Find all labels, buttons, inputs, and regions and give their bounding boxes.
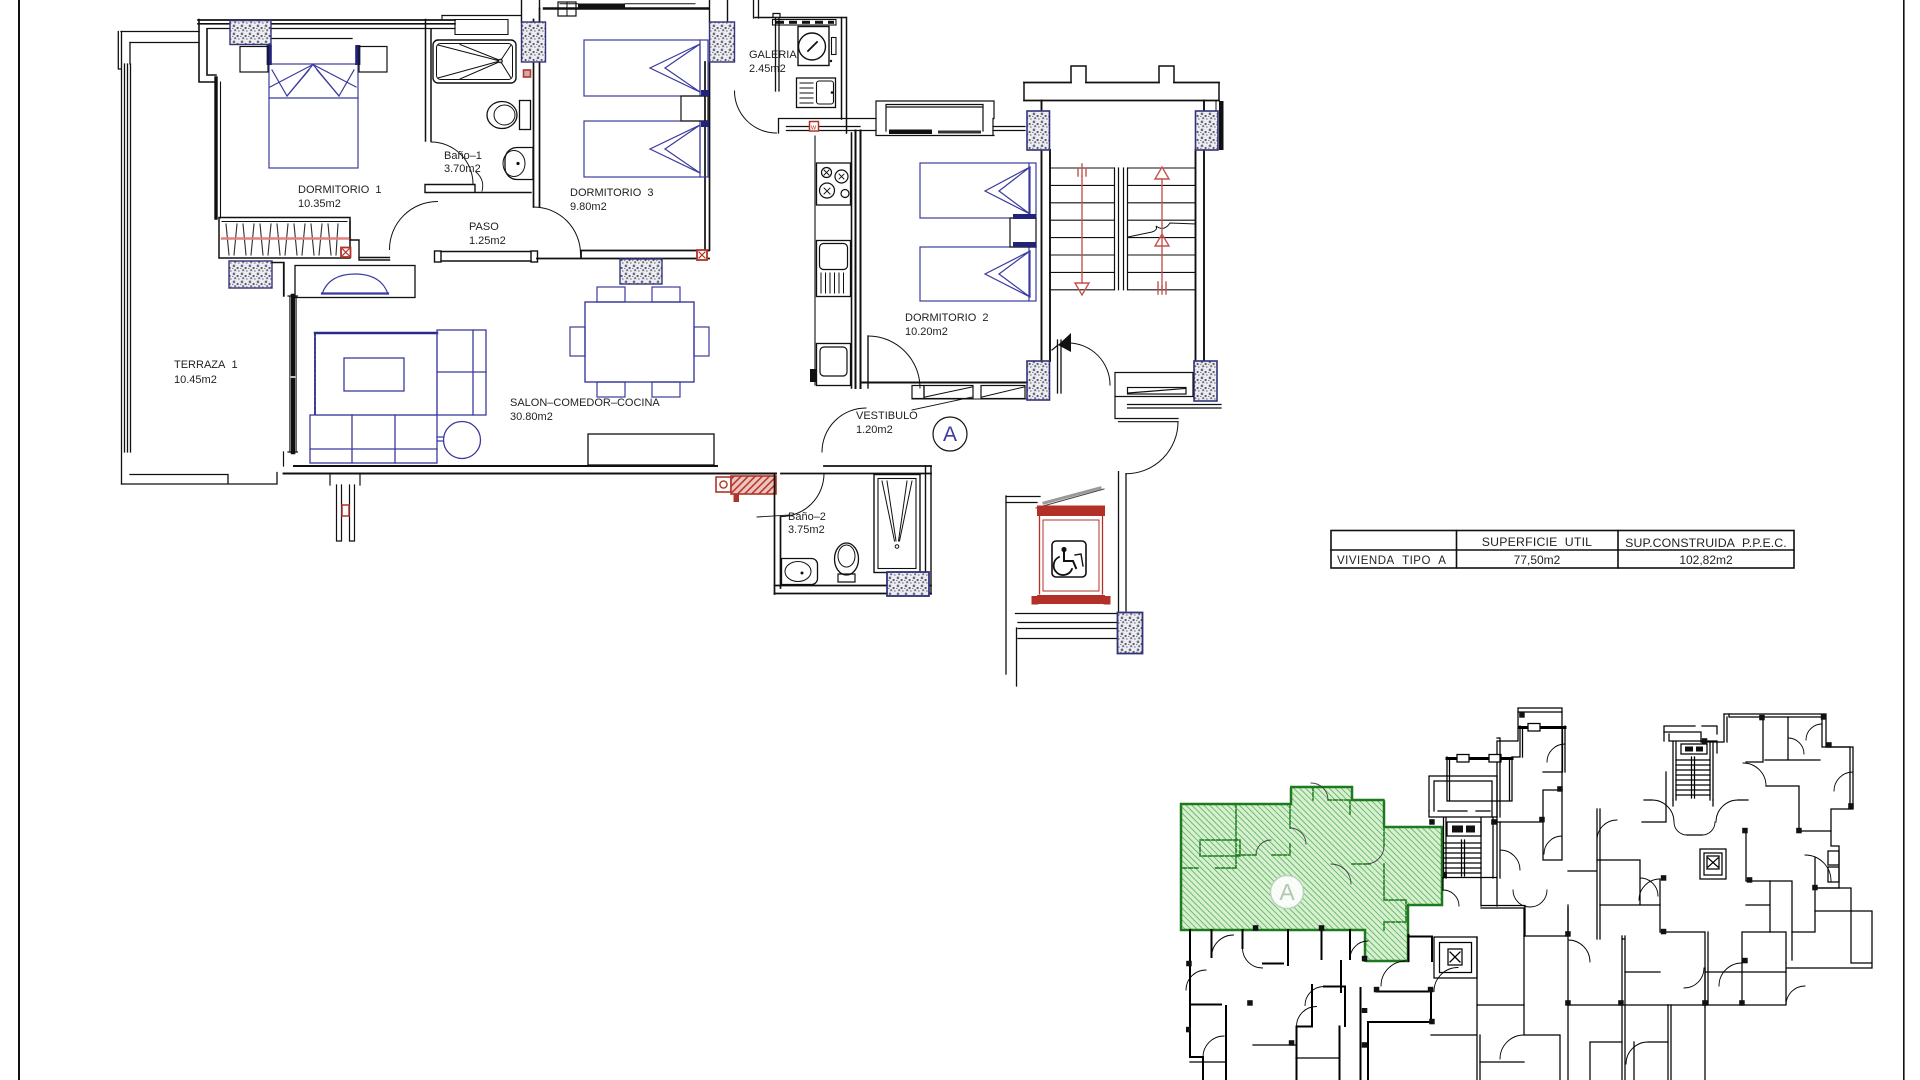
svg-text:VESTIBULO: VESTIBULO bbox=[856, 410, 918, 422]
svg-text:A: A bbox=[1279, 879, 1295, 905]
svg-text:1.20m2: 1.20m2 bbox=[856, 424, 893, 436]
svg-text:10.45m2: 10.45m2 bbox=[174, 374, 217, 386]
svg-text:DORMITORIO 2: DORMITORIO 2 bbox=[905, 312, 989, 324]
svg-text:SUPERFICIE UTIL: SUPERFICIE UTIL bbox=[1482, 535, 1592, 549]
svg-text:GALERIA: GALERIA bbox=[749, 49, 797, 61]
svg-text:10.20m2: 10.20m2 bbox=[905, 326, 948, 338]
svg-text:DORMITORIO 3: DORMITORIO 3 bbox=[570, 187, 654, 199]
svg-text:2.45m2: 2.45m2 bbox=[749, 63, 786, 75]
svg-text:Baño–2: Baño–2 bbox=[788, 511, 826, 523]
svg-text:102,82m2: 102,82m2 bbox=[1679, 553, 1733, 567]
svg-text:10.35m2: 10.35m2 bbox=[298, 198, 341, 210]
svg-text:VIVIENDA TIPO A: VIVIENDA TIPO A bbox=[1337, 555, 1446, 567]
svg-text:SUP.CONSTRUIDA P.P.E.C.: SUP.CONSTRUIDA P.P.E.C. bbox=[1625, 536, 1787, 550]
svg-text:w: w bbox=[810, 125, 817, 132]
svg-text:3.75m2: 3.75m2 bbox=[788, 524, 825, 536]
svg-text:3.70m2: 3.70m2 bbox=[444, 163, 481, 175]
svg-text:DORMITORIO 1: DORMITORIO 1 bbox=[298, 184, 382, 196]
svg-text:77,50m2: 77,50m2 bbox=[1514, 553, 1561, 567]
svg-text:A: A bbox=[943, 423, 957, 446]
svg-text:SALON–COMEDOR–COCINA: SALON–COMEDOR–COCINA bbox=[510, 397, 660, 409]
svg-text:9.80m2: 9.80m2 bbox=[570, 201, 607, 213]
svg-text:30.80m2: 30.80m2 bbox=[510, 411, 553, 423]
svg-text:Baño–1: Baño–1 bbox=[444, 150, 482, 162]
svg-text:PASO: PASO bbox=[469, 221, 499, 233]
svg-text:1.25m2: 1.25m2 bbox=[469, 235, 506, 247]
svg-text:TERRAZA 1: TERRAZA 1 bbox=[174, 359, 238, 371]
